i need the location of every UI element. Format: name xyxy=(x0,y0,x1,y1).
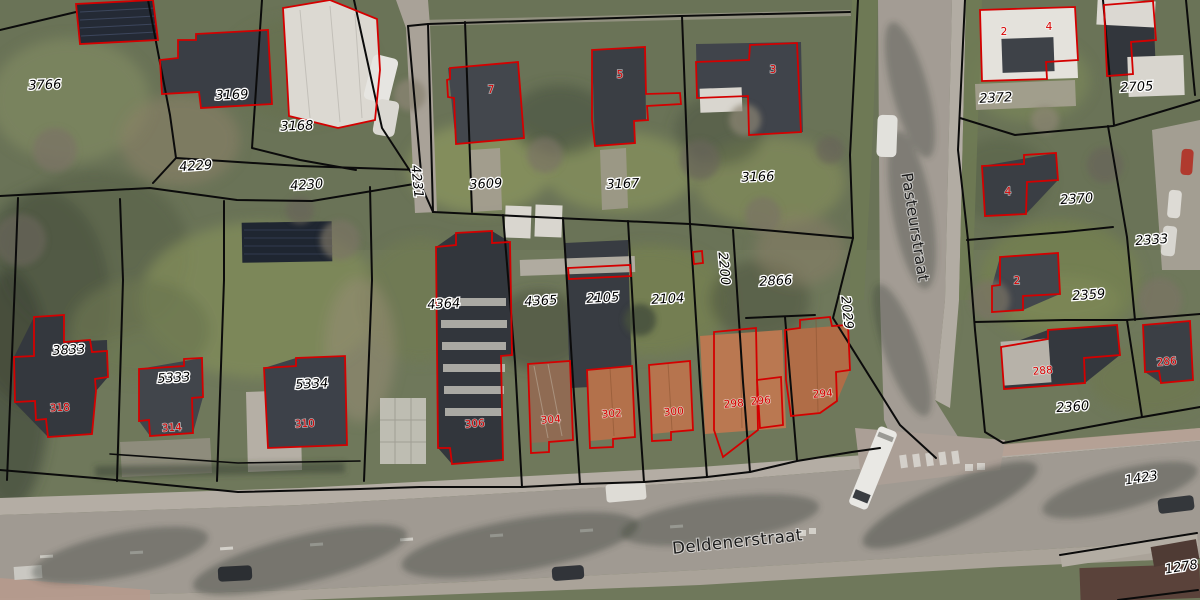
house-number-5: 5 xyxy=(617,69,624,81)
house-number-306: 306 xyxy=(464,417,485,430)
parcel-label-5333: 5333 xyxy=(157,370,191,387)
car xyxy=(218,565,253,582)
house-number-298: 298 xyxy=(723,397,744,410)
house-number-318: 318 xyxy=(50,401,71,414)
parcel-label-2370: 2370 xyxy=(1060,191,1094,208)
parcel-label-3766: 3766 xyxy=(28,77,62,93)
parcel-label-2105: 2105 xyxy=(586,290,620,307)
car xyxy=(1167,190,1182,219)
house-number-2: 2 xyxy=(1001,26,1008,38)
parcel-label-2104: 2104 xyxy=(651,291,685,308)
house-number-296: 296 xyxy=(750,394,771,407)
house-number-294: 294 xyxy=(812,387,833,400)
car xyxy=(552,565,585,581)
house-number-288: 288 xyxy=(1032,364,1053,378)
parcel-label-2359: 2359 xyxy=(1072,287,1106,304)
parcel-label-2200: 2200 xyxy=(715,252,733,286)
parcel-label-4365: 4365 xyxy=(524,293,558,310)
parcel-label-3166: 3166 xyxy=(741,169,775,185)
house-number-314: 314 xyxy=(162,421,183,434)
cadastral-map[interactable]: 3766 3169 3168 4229 4230 4231 3609 3167 … xyxy=(0,0,1200,600)
house-number-3: 3 xyxy=(770,64,777,76)
parcel-label-2360: 2360 xyxy=(1056,399,1090,416)
parcel-label-3168: 3168 xyxy=(280,118,314,134)
car xyxy=(876,115,897,158)
parcel-label-2866: 2866 xyxy=(759,273,793,290)
house-number-7: 7 xyxy=(488,84,495,96)
parcel-label-4229: 4229 xyxy=(179,158,213,175)
parcel-label-3609: 3609 xyxy=(469,176,503,193)
house-number-310: 310 xyxy=(295,417,316,430)
house-number-302: 302 xyxy=(601,407,622,420)
parcel-label-3169: 3169 xyxy=(215,87,249,103)
parcel-label-4364: 4364 xyxy=(427,296,461,313)
parcel-label-2705: 2705 xyxy=(1120,79,1154,96)
house-number-2b: 2 xyxy=(1014,275,1021,287)
truck xyxy=(605,481,646,502)
car xyxy=(1180,149,1194,176)
house-number-286: 286 xyxy=(1156,355,1177,369)
parcel-label-3167: 3167 xyxy=(606,176,640,192)
house-number-300: 300 xyxy=(663,405,684,418)
house-number-4: 4 xyxy=(1046,21,1053,33)
parcel-label-3833: 3833 xyxy=(52,342,86,359)
house-number-4b: 4 xyxy=(1005,186,1012,198)
parcel-label-5334: 5334 xyxy=(295,376,329,393)
parcel-label-2333: 2333 xyxy=(1135,232,1169,249)
parcel-label-2372: 2372 xyxy=(979,90,1013,107)
map-viewport[interactable]: 3766 3169 3168 4229 4230 4231 3609 3167 … xyxy=(0,0,1200,600)
house-number-304: 304 xyxy=(540,413,561,426)
parcel-label-4230: 4230 xyxy=(290,177,324,194)
